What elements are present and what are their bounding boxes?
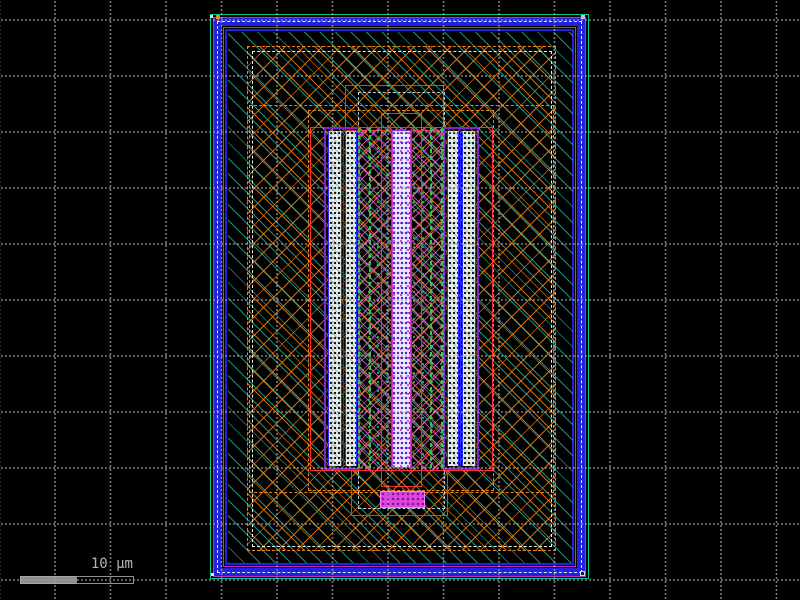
corner-marker <box>210 15 213 18</box>
corner-marker <box>211 573 214 576</box>
poly-line <box>441 128 443 469</box>
scale-bar-filled-segment <box>20 576 77 584</box>
pad-rect[interactable] <box>380 491 425 508</box>
via-stack-column[interactable] <box>391 130 412 468</box>
corner-marker <box>216 15 220 19</box>
corner-marker <box>580 571 585 576</box>
layout-canvas[interactable]: 10 µm <box>0 0 800 600</box>
contact-bar <box>462 131 476 466</box>
scale-bar-outline-segment <box>76 576 134 584</box>
metal-rail <box>343 131 344 466</box>
metal-rail <box>460 131 461 466</box>
contact-bar <box>328 131 342 466</box>
contact-group-right[interactable] <box>443 127 479 470</box>
poly-line <box>358 128 360 469</box>
contact-bar <box>345 131 357 466</box>
scale-bar-label: 10 µm <box>63 556 133 572</box>
contact-group-left[interactable] <box>324 127 360 470</box>
poly-line <box>430 128 432 469</box>
corner-marker <box>581 15 585 19</box>
contact-bar <box>447 131 459 466</box>
poly-line <box>369 128 371 469</box>
